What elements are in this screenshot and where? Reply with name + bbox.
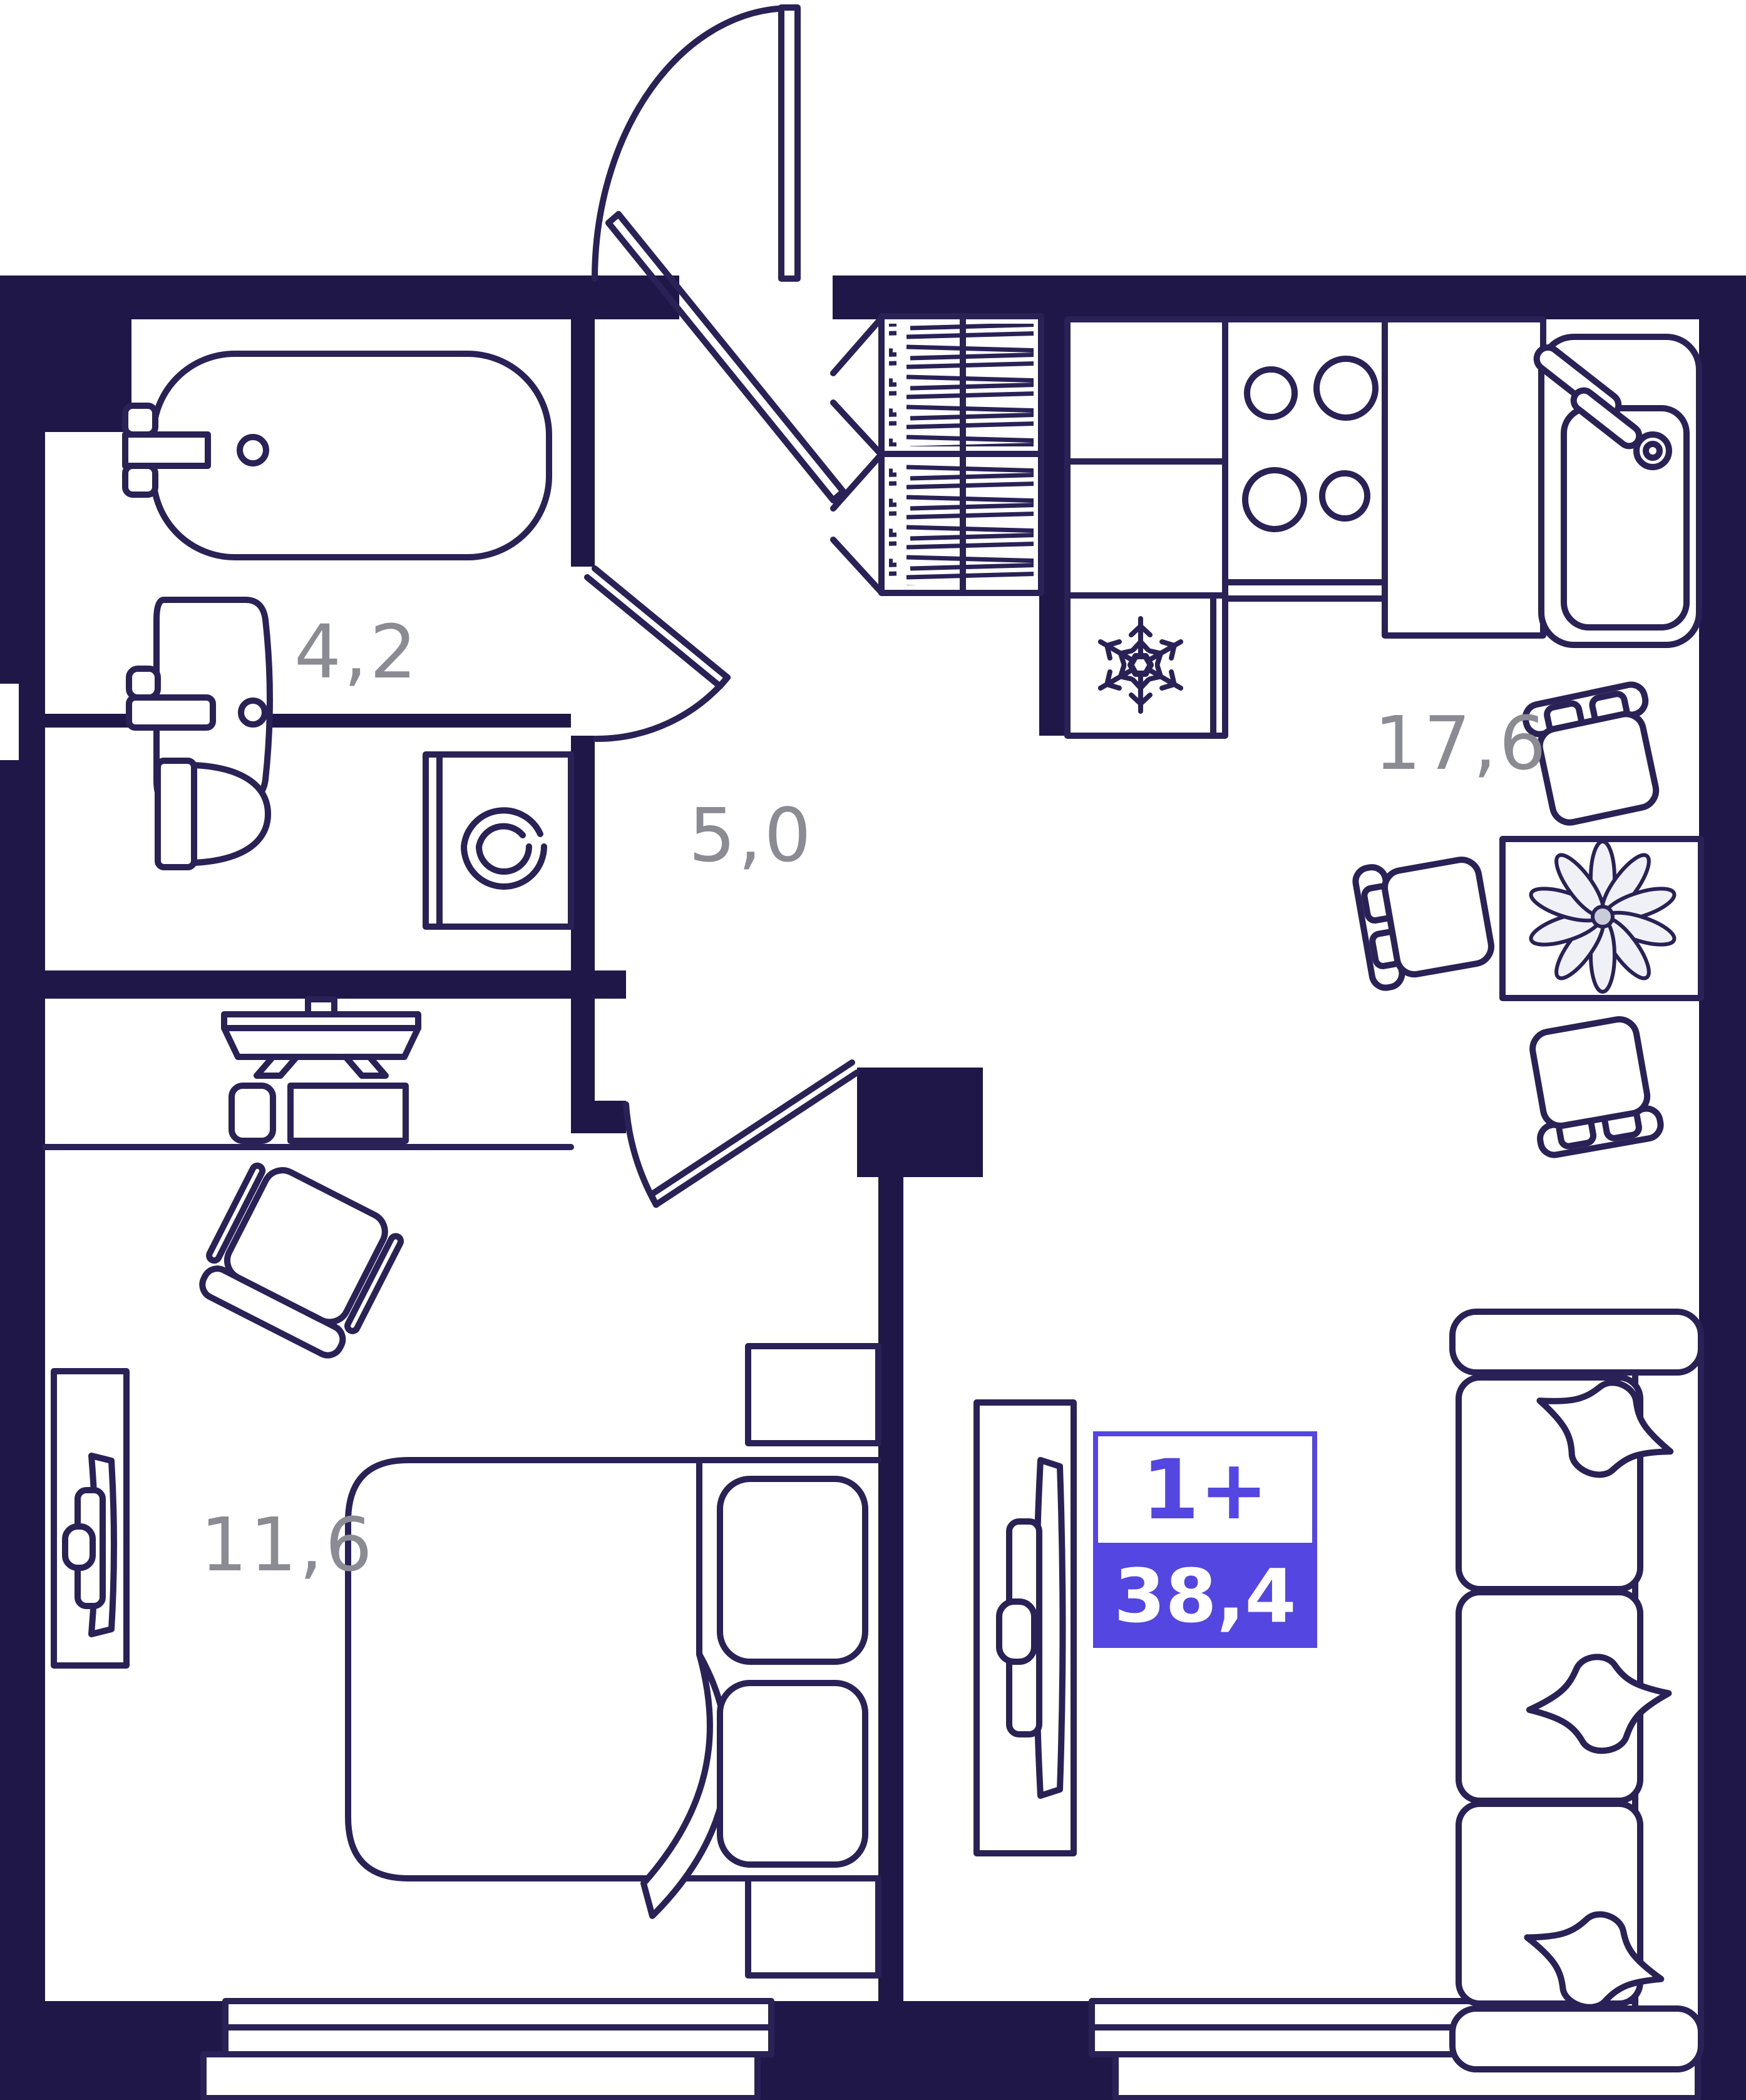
bedroom-door	[626, 1063, 857, 1205]
living-room: 17,6 1+ 38,4	[977, 682, 1701, 2069]
wall-right	[1699, 275, 1746, 2100]
wardrobe	[833, 316, 1041, 593]
stove	[1225, 319, 1385, 599]
wall-bottom-4	[0, 2054, 203, 2100]
wardrobe-door-chevrons	[833, 318, 881, 592]
sofa	[1452, 1312, 1701, 2069]
tv-mount	[65, 1526, 93, 1568]
bathtub-drain	[240, 437, 266, 463]
washing-machine	[426, 754, 571, 927]
kitchen	[1067, 319, 1699, 736]
wall-bathroom-right-upper	[571, 319, 595, 567]
wall-pier-bathroom	[45, 319, 131, 432]
wall-corner-block	[857, 1068, 983, 1177]
keyboard	[290, 1086, 406, 1141]
hallway-area-label: 5,0	[689, 792, 814, 878]
bed	[348, 1460, 878, 1916]
wall-bathroom-right-lower	[571, 736, 595, 1133]
burner	[1245, 470, 1304, 529]
living-area-label: 17,6	[1374, 700, 1549, 786]
sink-spout	[129, 697, 213, 728]
sink-drain	[241, 701, 265, 724]
sink-tap-knob	[129, 669, 158, 697]
entrance-door-leaf-open	[609, 214, 843, 500]
floor-plan: 4,2 5,0	[0, 0, 1746, 2100]
wall-left-niche	[0, 684, 19, 760]
monitor-icon	[224, 999, 418, 1076]
burner	[1322, 473, 1367, 518]
bedroom-window	[203, 2001, 771, 2098]
sofa-arm-bottom	[1452, 2009, 1701, 2069]
burner	[1247, 369, 1295, 417]
wall-bathroom-bottom	[45, 970, 626, 999]
nightstand-top	[748, 1346, 878, 1443]
tv-mount	[999, 1602, 1034, 1662]
nightstand-bottom	[748, 1878, 878, 1975]
wall-bottom-6	[1698, 2054, 1746, 2100]
bathroom: 4,2	[125, 354, 727, 927]
bed-pillow-2	[720, 1683, 865, 1865]
bedroom: 11,6	[45, 999, 878, 1975]
bathroom-area-label: 4,2	[294, 609, 419, 695]
desk	[45, 999, 571, 1363]
wall-bottom-1	[0, 2001, 225, 2057]
bedroom-door-arc	[626, 1104, 656, 1205]
wall-door-jamb	[595, 1101, 626, 1133]
tv-console-living	[977, 1403, 1074, 1853]
toilet-tank	[158, 761, 194, 867]
bathtub-spout	[125, 435, 208, 466]
entrance-door-leaf	[781, 8, 798, 279]
wall-bedroom-living	[878, 1177, 903, 2001]
fridge	[1067, 595, 1225, 736]
floor-plan-page: 4,2 5,0	[0, 0, 1746, 2100]
bed-pillow-1	[720, 1479, 865, 1662]
mousepad	[232, 1086, 273, 1141]
bedroom-area-label: 11,6	[200, 1501, 375, 1588]
wall-bottom-5	[757, 2054, 1116, 2100]
bathroom-door-arc	[596, 677, 727, 739]
kitchen-counter	[1385, 319, 1543, 636]
bathtub	[125, 354, 549, 557]
bedroom-tv-console	[54, 1371, 126, 1665]
apartment-badge: 1+ 38,4	[1096, 1434, 1315, 1645]
bathtub-tap-knob-2	[125, 466, 155, 495]
badge-total-area: 38,4	[1114, 1553, 1296, 1639]
bathtub-tap-knob-1	[125, 406, 155, 435]
kitchen-cabinet-2	[1067, 461, 1225, 595]
dining-chair-left	[1353, 849, 1496, 990]
kitchen-sink	[1532, 337, 1699, 645]
badge-type-label: 1+	[1142, 1442, 1268, 1538]
kitchen-cabinet-1	[1067, 319, 1225, 461]
wall-left	[0, 275, 45, 2100]
wall-top-left	[0, 275, 679, 319]
dining-chair-bottom	[1522, 1015, 1663, 1157]
sofa-arm-top	[1452, 1312, 1701, 1372]
wall-top-right	[833, 275, 1746, 319]
desk-chair	[192, 1156, 406, 1363]
sink-drain-center	[1646, 444, 1660, 458]
entrance-door	[595, 8, 843, 500]
wall-bottom-2	[771, 2001, 1092, 2057]
wall-bath-partition	[45, 714, 571, 728]
burner	[1317, 359, 1375, 418]
bathroom-door	[587, 569, 727, 739]
